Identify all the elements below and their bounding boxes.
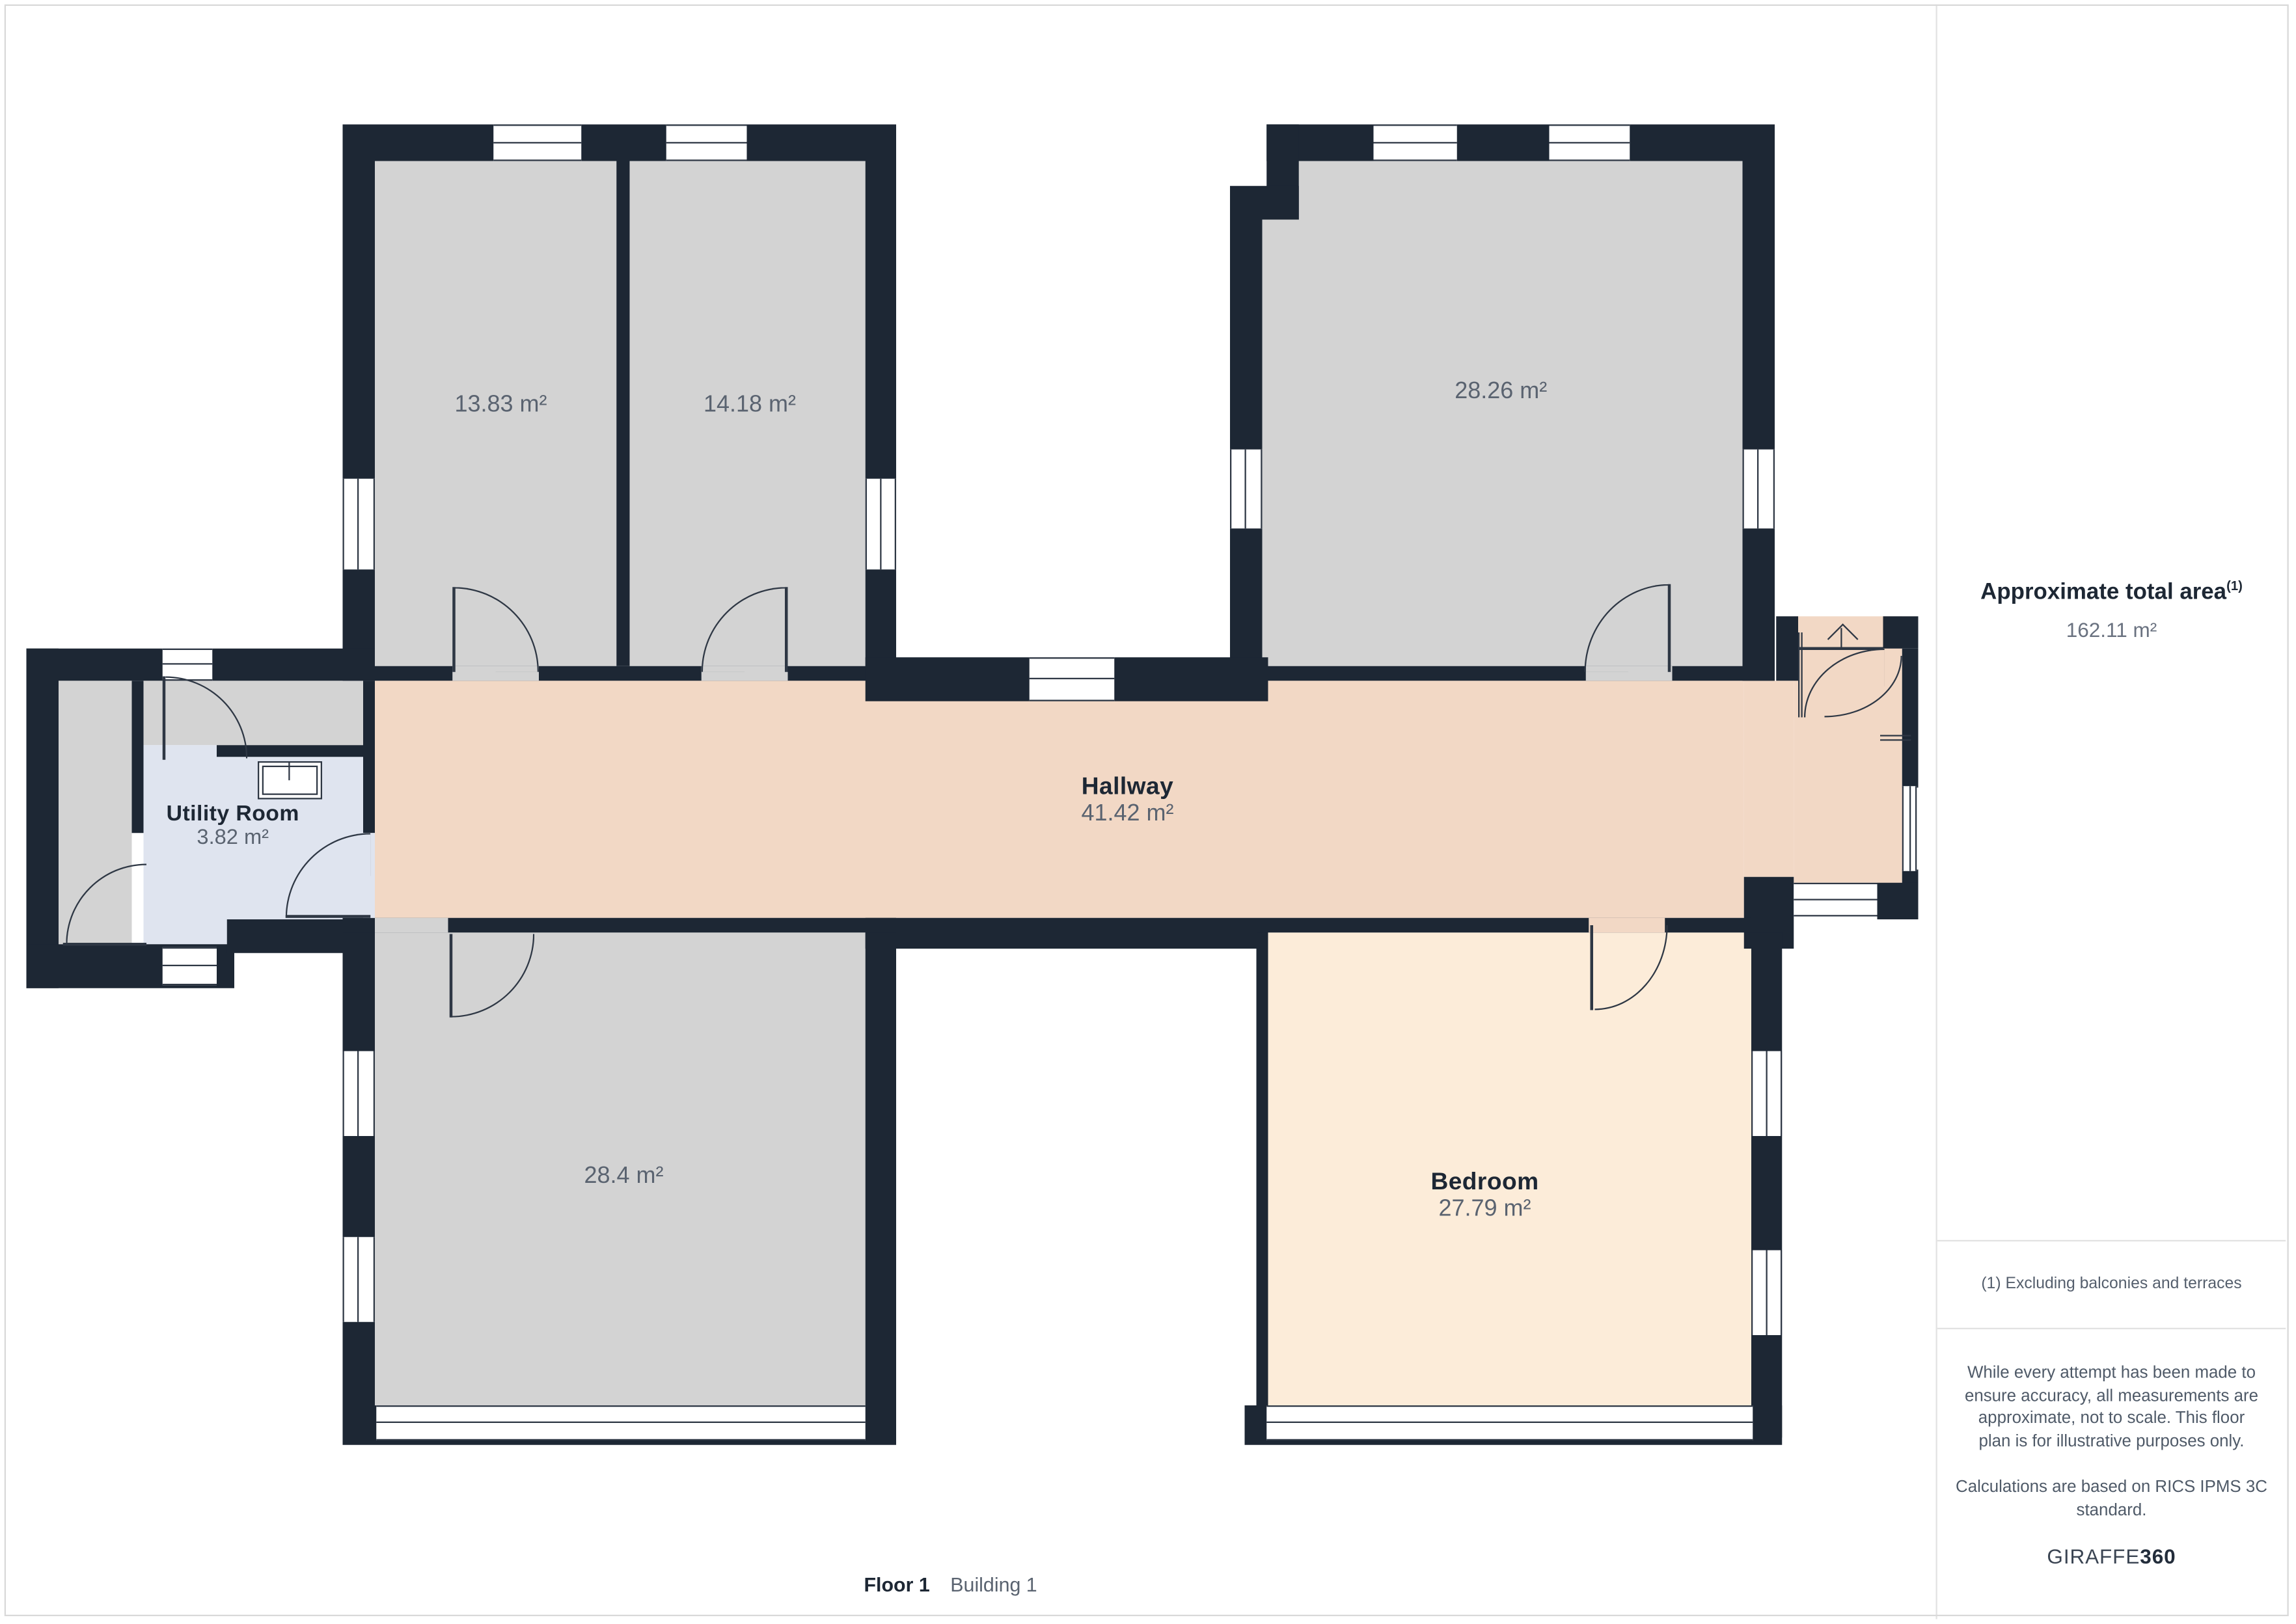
page-border [5,5,2289,1616]
floorplan-page: 13.83 m² 14.18 m² 28.26 m² Hallway 41.42… [0,0,2296,1623]
screenshot-canvas: 13.83 m² 14.18 m² 28.26 m² Hallway 41.42… [0,0,2296,1624]
